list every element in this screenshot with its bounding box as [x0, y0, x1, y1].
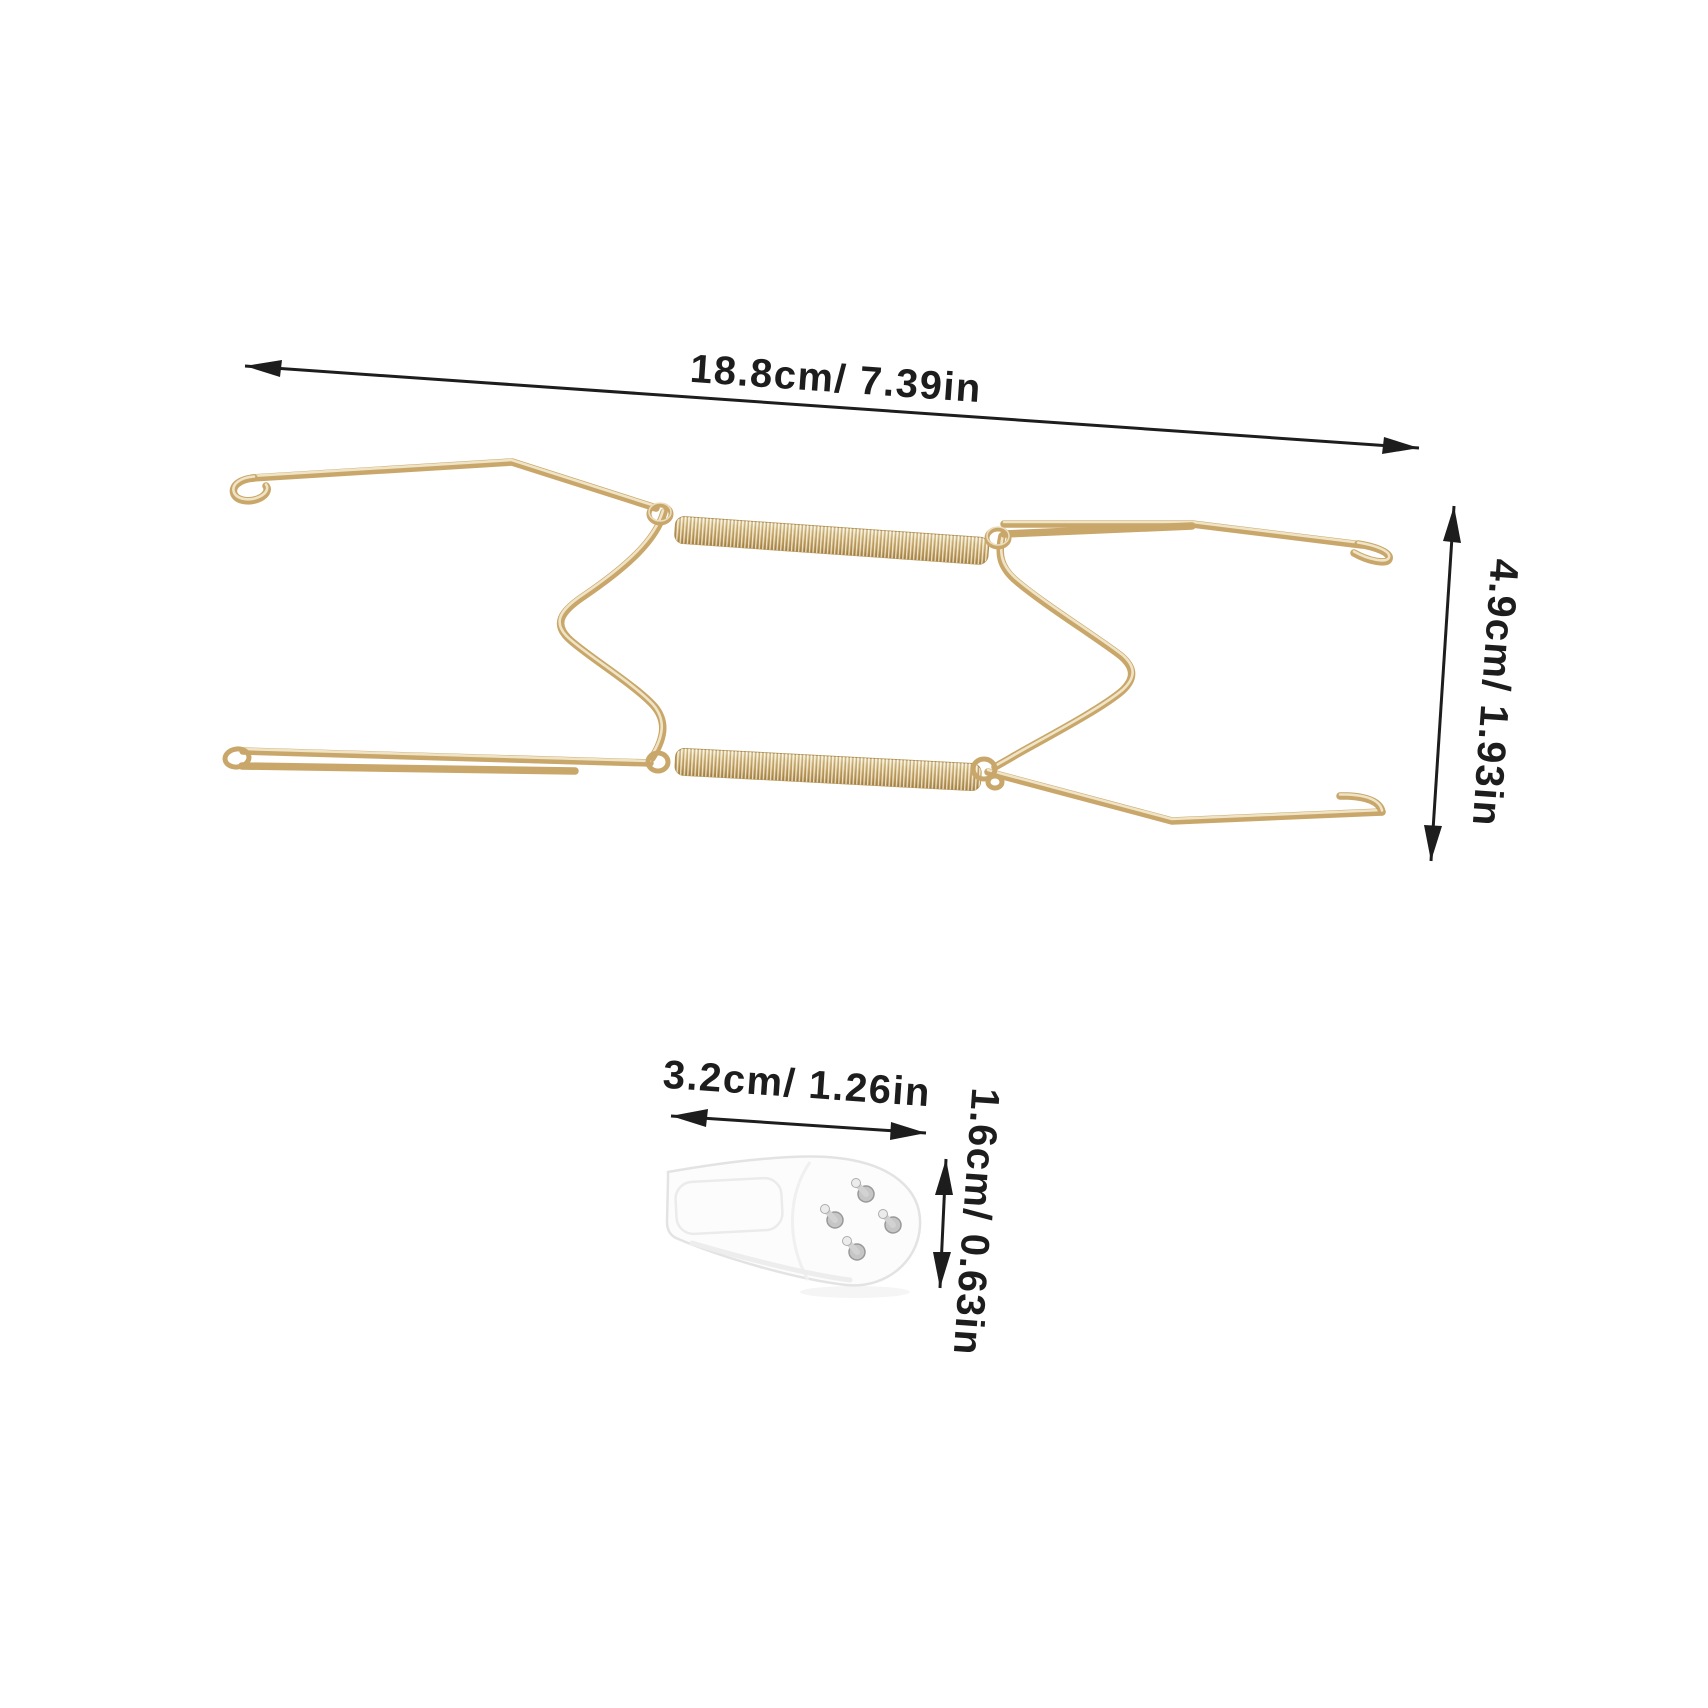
hanger-right-zigzag: [995, 535, 1133, 768]
arrowhead-down-icon: [933, 1252, 951, 1288]
hanger-bottom-left-arm: [224, 747, 650, 771]
pin-tip: [852, 1179, 861, 1188]
arrowhead-left-icon: [245, 360, 282, 377]
product-diagram-canvas: 18.8cm/ 7.39in 4.9cm/ 1.93in: [0, 0, 1708, 1708]
hanger-bottom-spring: [675, 748, 982, 791]
pin-tip: [879, 1210, 888, 1219]
hanger-height-dimension-arrow: [1424, 506, 1461, 861]
wire-highlight: [988, 770, 1382, 819]
dimension-line: [1431, 506, 1454, 861]
arrowhead-right-icon: [890, 1122, 926, 1140]
pin-tip: [843, 1237, 852, 1246]
arrowhead-up-icon: [1443, 506, 1461, 543]
joint-knot: [988, 776, 1002, 788]
hook-width-dimension-arrow: [671, 1109, 926, 1140]
hanger-top-left-arm: [233, 460, 656, 508]
wire-path: [995, 536, 1132, 767]
arrowhead-left-icon: [671, 1109, 708, 1127]
hook-height-dimension-arrow: [933, 1159, 953, 1288]
arrowhead-right-icon: [1382, 437, 1419, 454]
hanger-top-spring: [674, 516, 989, 565]
soft-shadow: [800, 1286, 910, 1298]
wire-path: [242, 766, 575, 771]
wire-path: [561, 512, 664, 758]
plate-hanger-image: [224, 460, 1389, 821]
hanger-bottom-right-arm: [988, 770, 1382, 821]
dimension-line: [671, 1116, 926, 1133]
product-dimension-diagram: 18.8cm/ 7.39in 4.9cm/ 1.93in: [0, 0, 1708, 1708]
hanger-left-zigzag: [560, 511, 664, 759]
arrowhead-up-icon: [935, 1159, 953, 1195]
plate-hook-bottom-left-eye: [224, 747, 250, 768]
wire-path: [243, 751, 650, 763]
spring-coils: [674, 516, 989, 565]
hook-width-dimension-label: 3.2cm/ 1.26in: [662, 1053, 933, 1116]
wall-hook-image: [667, 1156, 920, 1298]
arrowhead-down-icon: [1424, 825, 1442, 861]
hanger-height-dimension-label: 4.9cm/ 1.93in: [1464, 557, 1527, 828]
hanger-top-right-arm: [1004, 522, 1389, 562]
spring-coils: [675, 748, 982, 791]
hook-height-dimension-label: 1.6cm/ 0.63in: [945, 1086, 1008, 1357]
wire-path: [252, 462, 656, 508]
pin-tip: [821, 1205, 830, 1214]
